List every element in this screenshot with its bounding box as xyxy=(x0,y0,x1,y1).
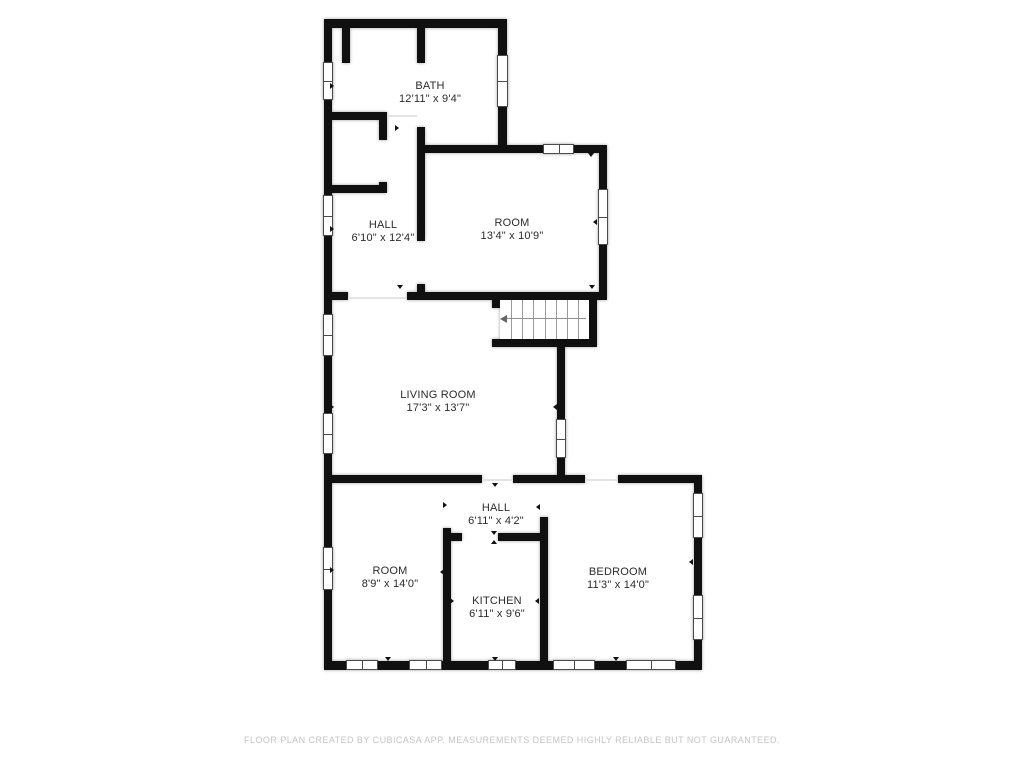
door-tick-icon xyxy=(430,22,436,26)
door-tick-icon xyxy=(443,502,447,508)
stair-tread xyxy=(533,300,534,339)
window-mullion xyxy=(651,661,652,669)
stair-tread xyxy=(567,300,568,339)
room-name: BATH xyxy=(399,80,461,93)
door-tick-icon xyxy=(450,598,454,604)
room-dimensions: 12'11" x 9'4" xyxy=(399,93,461,106)
door-threshold xyxy=(585,479,618,481)
window-mullion xyxy=(324,434,332,435)
footer-disclaimer: FLOOR PLAN CREATED BY CUBICASA APP. MEAS… xyxy=(0,735,1024,745)
window xyxy=(323,62,333,100)
room-dimensions: 17'3" x 13'7" xyxy=(400,402,476,415)
stair-tread xyxy=(545,300,546,339)
wall-segment xyxy=(557,339,565,483)
room-label-living-room: LIVING ROOM17'3" x 13'7" xyxy=(400,389,476,415)
window-mullion xyxy=(557,439,565,440)
floorplan-structure xyxy=(0,0,1024,768)
wall-segment xyxy=(498,533,540,541)
door-tick-icon xyxy=(385,657,391,661)
wall-segment xyxy=(332,185,387,193)
window xyxy=(543,144,574,154)
wall-segment xyxy=(513,475,585,483)
window xyxy=(556,419,566,458)
door-tick-icon xyxy=(418,216,422,222)
door-tick-icon xyxy=(689,559,693,565)
window-mullion xyxy=(324,81,332,82)
wall-segment xyxy=(324,292,348,300)
room-dimensions: 13'4" x 10'9" xyxy=(481,230,544,243)
window-mullion xyxy=(559,145,560,153)
stair-direction-line xyxy=(506,318,586,319)
door-tick-icon xyxy=(588,153,594,157)
window-mullion xyxy=(694,618,702,619)
wall-segment xyxy=(492,300,500,308)
wall-segment xyxy=(417,19,425,63)
wall-segment xyxy=(443,533,462,541)
window-mullion xyxy=(599,217,607,218)
window xyxy=(693,493,703,538)
window xyxy=(488,660,516,670)
door-tick-icon xyxy=(553,404,557,410)
door-tick-icon xyxy=(589,285,595,289)
room-name: ROOM xyxy=(481,217,544,230)
staircase xyxy=(500,300,589,339)
wall-segment xyxy=(443,528,451,661)
wall-segment xyxy=(407,292,607,300)
stair-tread xyxy=(556,300,557,339)
door-tick-icon xyxy=(330,226,334,232)
door-threshold xyxy=(387,115,417,117)
door-tick-icon xyxy=(395,125,399,131)
room-label-room-upper: ROOM13'4" x 10'9" xyxy=(481,217,544,243)
room-label-bedroom: BEDROOM11'3" x 14'0" xyxy=(587,566,649,592)
stair-tread xyxy=(511,300,512,339)
door-tick-icon xyxy=(536,504,540,510)
door-tick-icon xyxy=(491,531,497,535)
window xyxy=(497,55,508,107)
room-label-hall-lower: HALL6'11" x 4'2" xyxy=(468,502,524,528)
door-tick-icon xyxy=(330,404,334,410)
window-mullion xyxy=(694,516,702,517)
room-dimensions: 6'10" x 12'4" xyxy=(352,232,415,245)
room-name: HALL xyxy=(468,502,524,515)
room-name: HALL xyxy=(352,219,415,232)
window xyxy=(693,595,703,640)
room-label-hall-upper: HALL6'10" x 12'4" xyxy=(352,219,415,245)
window-mullion xyxy=(426,661,427,669)
door-tick-icon xyxy=(492,483,498,487)
window-mullion xyxy=(362,661,363,669)
door-tick-icon xyxy=(397,285,403,289)
wall-segment xyxy=(492,339,597,347)
room-label-bath: BATH12'11" x 9'4" xyxy=(399,80,461,106)
door-tick-icon xyxy=(491,540,497,544)
room-label-room-lower: ROOM8'9" x 14'0" xyxy=(362,565,419,591)
door-threshold xyxy=(348,297,407,299)
floorplan-canvas: BATH12'11" x 9'4"HALL6'10" x 12'4"ROOM13… xyxy=(0,0,1024,768)
wall-segment xyxy=(417,284,425,300)
window xyxy=(323,314,333,356)
door-tick-icon xyxy=(330,567,334,573)
door-tick-icon xyxy=(613,657,619,661)
door-tick-icon xyxy=(535,598,539,604)
stair-direction-arrow-icon xyxy=(500,315,507,323)
wall-segment xyxy=(618,475,702,483)
wall-segment xyxy=(379,112,387,140)
room-name: LIVING ROOM xyxy=(400,389,476,402)
room-label-kitchen: KITCHEN6'11" x 9'6" xyxy=(469,595,525,621)
window-mullion xyxy=(574,661,575,669)
wall-segment xyxy=(540,517,548,661)
room-dimensions: 6'11" x 9'6" xyxy=(469,608,525,621)
window-mullion xyxy=(502,661,503,669)
window xyxy=(409,660,442,670)
room-dimensions: 8'9" x 14'0" xyxy=(362,578,419,591)
wall-segment xyxy=(342,28,350,63)
room-dimensions: 11'3" x 14'0" xyxy=(587,579,649,592)
wall-segment xyxy=(324,19,507,28)
room-name: BEDROOM xyxy=(587,566,649,579)
door-tick-icon xyxy=(330,83,334,89)
door-tick-icon xyxy=(492,657,498,661)
wall-segment xyxy=(324,475,482,483)
window-mullion xyxy=(324,216,332,217)
door-threshold xyxy=(482,479,513,481)
stair-tread xyxy=(522,300,523,339)
door-tick-icon xyxy=(544,569,548,575)
room-name: KITCHEN xyxy=(469,595,525,608)
window xyxy=(598,189,608,245)
door-tick-icon xyxy=(440,569,444,575)
window xyxy=(346,660,378,670)
room-dimensions: 6'11" x 4'2" xyxy=(468,515,524,528)
door-tick-icon xyxy=(593,219,597,225)
wall-segment xyxy=(417,145,498,153)
window xyxy=(323,413,333,454)
window xyxy=(553,660,595,670)
window-mullion xyxy=(324,335,332,336)
stair-tread xyxy=(578,300,579,339)
window xyxy=(626,660,676,670)
room-name: ROOM xyxy=(362,565,419,578)
window-mullion xyxy=(498,81,507,82)
